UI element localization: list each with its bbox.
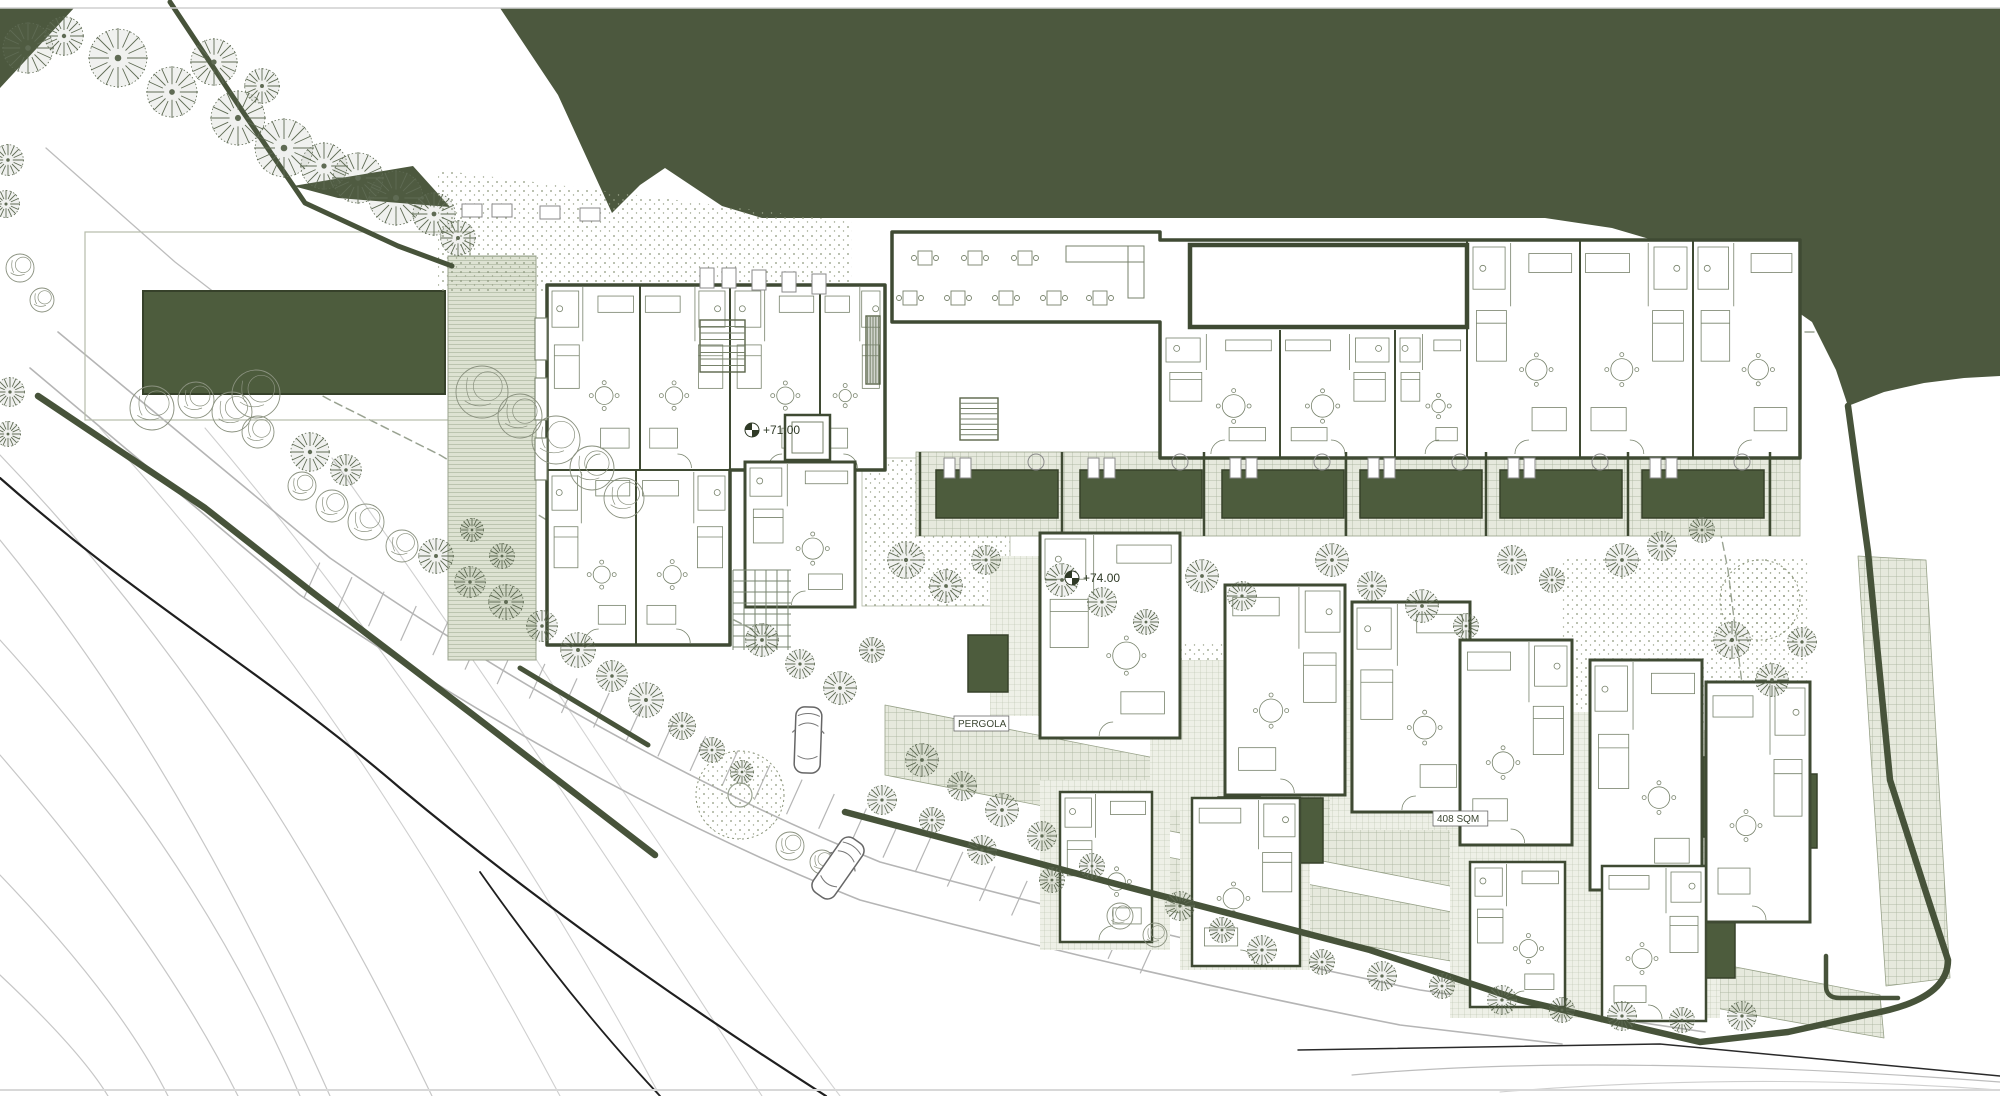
- deciduous-tree: [242, 416, 274, 448]
- pine-tree: [1497, 545, 1527, 575]
- path-shape: [0, 455, 432, 1096]
- pine-tree: [0, 190, 20, 218]
- site-plan-canvas: Resort site plan: [0, 0, 2000, 1096]
- pine-tree: [1185, 559, 1219, 593]
- deciduous-tree: [30, 288, 54, 312]
- pine-tree: [785, 649, 815, 679]
- pine-tree: [489, 543, 515, 569]
- rect-shape: [540, 206, 560, 219]
- area-label: 408 SQM: [1433, 811, 1488, 826]
- rect-shape: [722, 268, 736, 288]
- pine-tree: [1133, 609, 1159, 635]
- path-shape: [0, 975, 108, 1096]
- pine-tree: [1689, 517, 1715, 543]
- pine-tree: [418, 538, 454, 574]
- pine-tree: [971, 545, 1001, 575]
- pine-tree: [947, 771, 977, 801]
- rect-shape: [462, 204, 482, 217]
- pine-tree: [1087, 587, 1117, 617]
- pine-tree: [88, 28, 148, 88]
- pine-tree: [1227, 581, 1257, 611]
- pine-tree: [823, 671, 857, 705]
- pine-tree: [1647, 531, 1677, 561]
- planting-circle: [1720, 560, 1800, 640]
- stairs: [960, 398, 998, 440]
- pine-tree: [190, 38, 238, 86]
- deciduous-tree: [348, 504, 384, 540]
- deciduous-tree: [6, 254, 34, 282]
- site-plan-drawing: Resort site plan: [0, 0, 2000, 1096]
- pine-tree: [330, 454, 362, 486]
- svg-text:PERGOLA: PERGOLA: [958, 719, 1007, 730]
- pine-tree: [628, 682, 664, 718]
- deciduous-tree: [288, 472, 316, 500]
- car: [806, 832, 870, 904]
- pine-tree: [1247, 935, 1277, 965]
- rect-shape: [752, 270, 766, 290]
- pine-tree: [1539, 567, 1565, 593]
- svg-text:408 SQM: 408 SQM: [1437, 814, 1479, 825]
- pine-tree: [1607, 1001, 1637, 1031]
- pine-tree: [44, 16, 84, 56]
- pine-tree: [146, 66, 198, 118]
- rect-shape: [1190, 245, 1467, 327]
- layer-cars: [791, 706, 870, 904]
- pine-tree: [1669, 1007, 1695, 1033]
- pine-tree: [1209, 917, 1235, 943]
- path-shape: [0, 640, 300, 1096]
- rect-shape: [1590, 660, 1702, 890]
- rect-shape: [1352, 602, 1470, 812]
- pine-tree: [0, 421, 21, 447]
- elevation-marker: +74.00: [1065, 571, 1120, 585]
- rect-shape: [143, 291, 445, 394]
- pine-tree: [1315, 543, 1349, 577]
- pine-tree: [1039, 867, 1065, 893]
- path-shape: [0, 755, 238, 1096]
- rect-shape: [1225, 585, 1345, 795]
- pine-tree: [887, 541, 925, 579]
- pine-tree: [919, 807, 945, 833]
- rect-shape: [580, 208, 600, 221]
- pine-tree: [1165, 891, 1195, 921]
- rect-shape: [700, 268, 714, 288]
- pine-tree: [1727, 1001, 1757, 1031]
- pine-tree: [596, 660, 628, 692]
- elevation-marker: +71.00: [745, 423, 800, 437]
- pine-tree: [1787, 627, 1817, 657]
- pine-tree: [1549, 997, 1575, 1023]
- pine-tree: [1429, 973, 1455, 999]
- pine-tree: [859, 637, 885, 663]
- pine-tree: [1453, 613, 1479, 639]
- pine-tree: [967, 835, 997, 865]
- pine-tree: [488, 584, 524, 620]
- pine-tree: [1079, 853, 1105, 879]
- rect-shape: [968, 635, 1008, 692]
- pine-tree: [1367, 961, 1397, 991]
- rect-shape: [535, 318, 547, 360]
- rect-shape: [1706, 682, 1810, 922]
- deciduous-tree: [316, 490, 348, 522]
- pine-tree: [1309, 949, 1335, 975]
- rect-shape: [782, 272, 796, 292]
- pine-tree: [0, 144, 24, 176]
- elevation-label: +74.00: [1083, 571, 1120, 585]
- pine-tree: [1487, 985, 1517, 1015]
- pine-tree: [290, 432, 330, 472]
- pine-tree: [867, 785, 897, 815]
- pine-tree: [668, 712, 696, 740]
- deciduous-tree: [776, 832, 804, 860]
- pine-tree: [0, 377, 25, 407]
- planting-circle: [696, 751, 784, 839]
- rect-shape: [812, 274, 826, 294]
- car: [791, 706, 825, 773]
- pine-tree: [1027, 821, 1057, 851]
- pine-tree: [1357, 571, 1387, 601]
- pine-tree: [560, 632, 596, 668]
- area-label: PERGOLA: [954, 716, 1009, 731]
- plan-layers: +71.00+74.00408 SQMPERGOLA: [0, 2, 2000, 1096]
- elevation-label: +71.00: [763, 423, 800, 437]
- rect-shape: [492, 204, 512, 217]
- path-shape: [480, 872, 660, 1096]
